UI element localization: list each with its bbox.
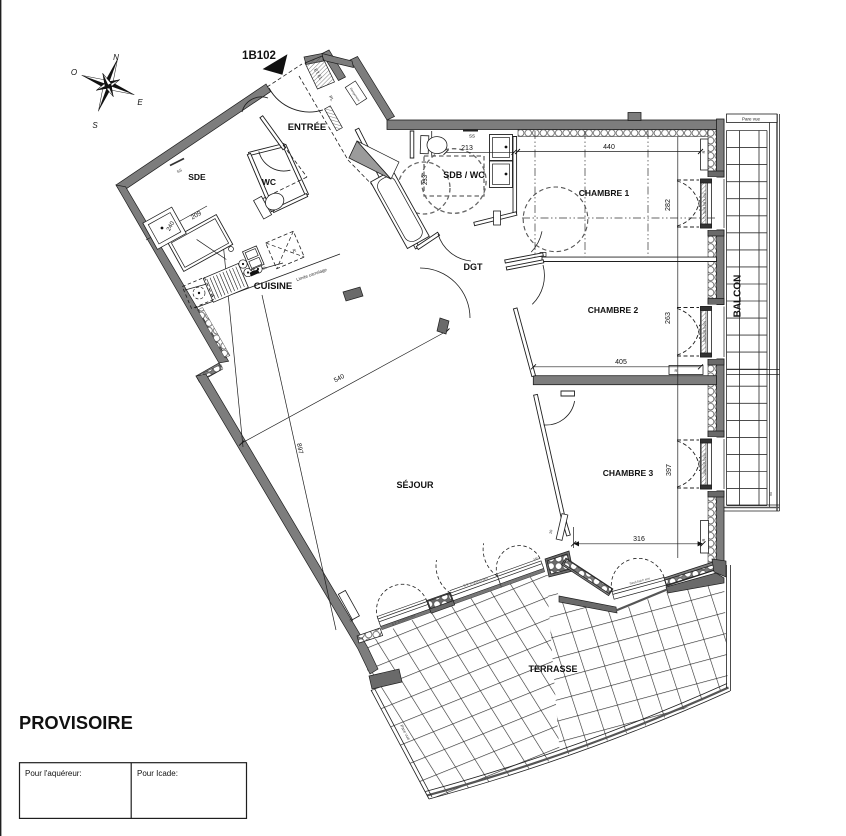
svg-text:BALCON: BALCON	[733, 275, 744, 318]
svg-text:233: 233	[423, 174, 429, 185]
svg-text:R: R	[701, 538, 706, 541]
svg-text:397: 397	[664, 464, 673, 476]
svg-text:SS: SS	[469, 134, 475, 139]
svg-text:316: 316	[633, 536, 645, 543]
svg-text:Seuil bat h env: Seuil bat h env	[703, 453, 707, 474]
svg-text:PROVISOIRE: PROVISOIRE	[19, 712, 133, 733]
svg-text:405: 405	[615, 359, 627, 366]
svg-text:R: R	[701, 150, 706, 153]
svg-text:DGT: DGT	[464, 262, 484, 272]
svg-text:E: E	[137, 98, 143, 107]
svg-text:SDB / WC: SDB / WC	[443, 170, 485, 180]
svg-text:S: S	[92, 121, 98, 130]
svg-text:Seuil bat h env: Seuil bat h env	[703, 321, 707, 342]
svg-text:440: 440	[603, 144, 615, 151]
svg-text:Pare vue: Pare vue	[742, 117, 761, 122]
svg-text:213: 213	[461, 145, 473, 152]
svg-text:CHAMBRE 2: CHAMBRE 2	[588, 305, 639, 315]
svg-text:R: R	[675, 368, 678, 373]
svg-text:ENTRÉE: ENTRÉE	[288, 122, 327, 133]
svg-text:263: 263	[663, 312, 672, 324]
svg-text:Pour Icade:: Pour Icade:	[137, 769, 178, 778]
svg-text:1B102: 1B102	[242, 50, 276, 62]
svg-text:TERRASSE: TERRASSE	[528, 664, 577, 674]
svg-text:90: 90	[769, 492, 773, 496]
svg-text:CUISINE: CUISINE	[254, 281, 293, 292]
svg-text:Pour l'aquéreur:: Pour l'aquéreur:	[25, 769, 82, 778]
svg-text:WC: WC	[262, 177, 276, 187]
svg-text:O: O	[71, 68, 77, 77]
svg-text:N: N	[113, 53, 119, 62]
svg-text:SÉJOUR: SÉJOUR	[396, 480, 434, 490]
svg-text:Seuil bat h env: Seuil bat h env	[703, 193, 707, 214]
svg-text:CHAMBRE 3: CHAMBRE 3	[603, 468, 654, 478]
svg-text:CHAMBRE 1: CHAMBRE 1	[579, 188, 630, 198]
svg-text:282: 282	[663, 199, 672, 211]
svg-text:SDE: SDE	[188, 172, 206, 182]
